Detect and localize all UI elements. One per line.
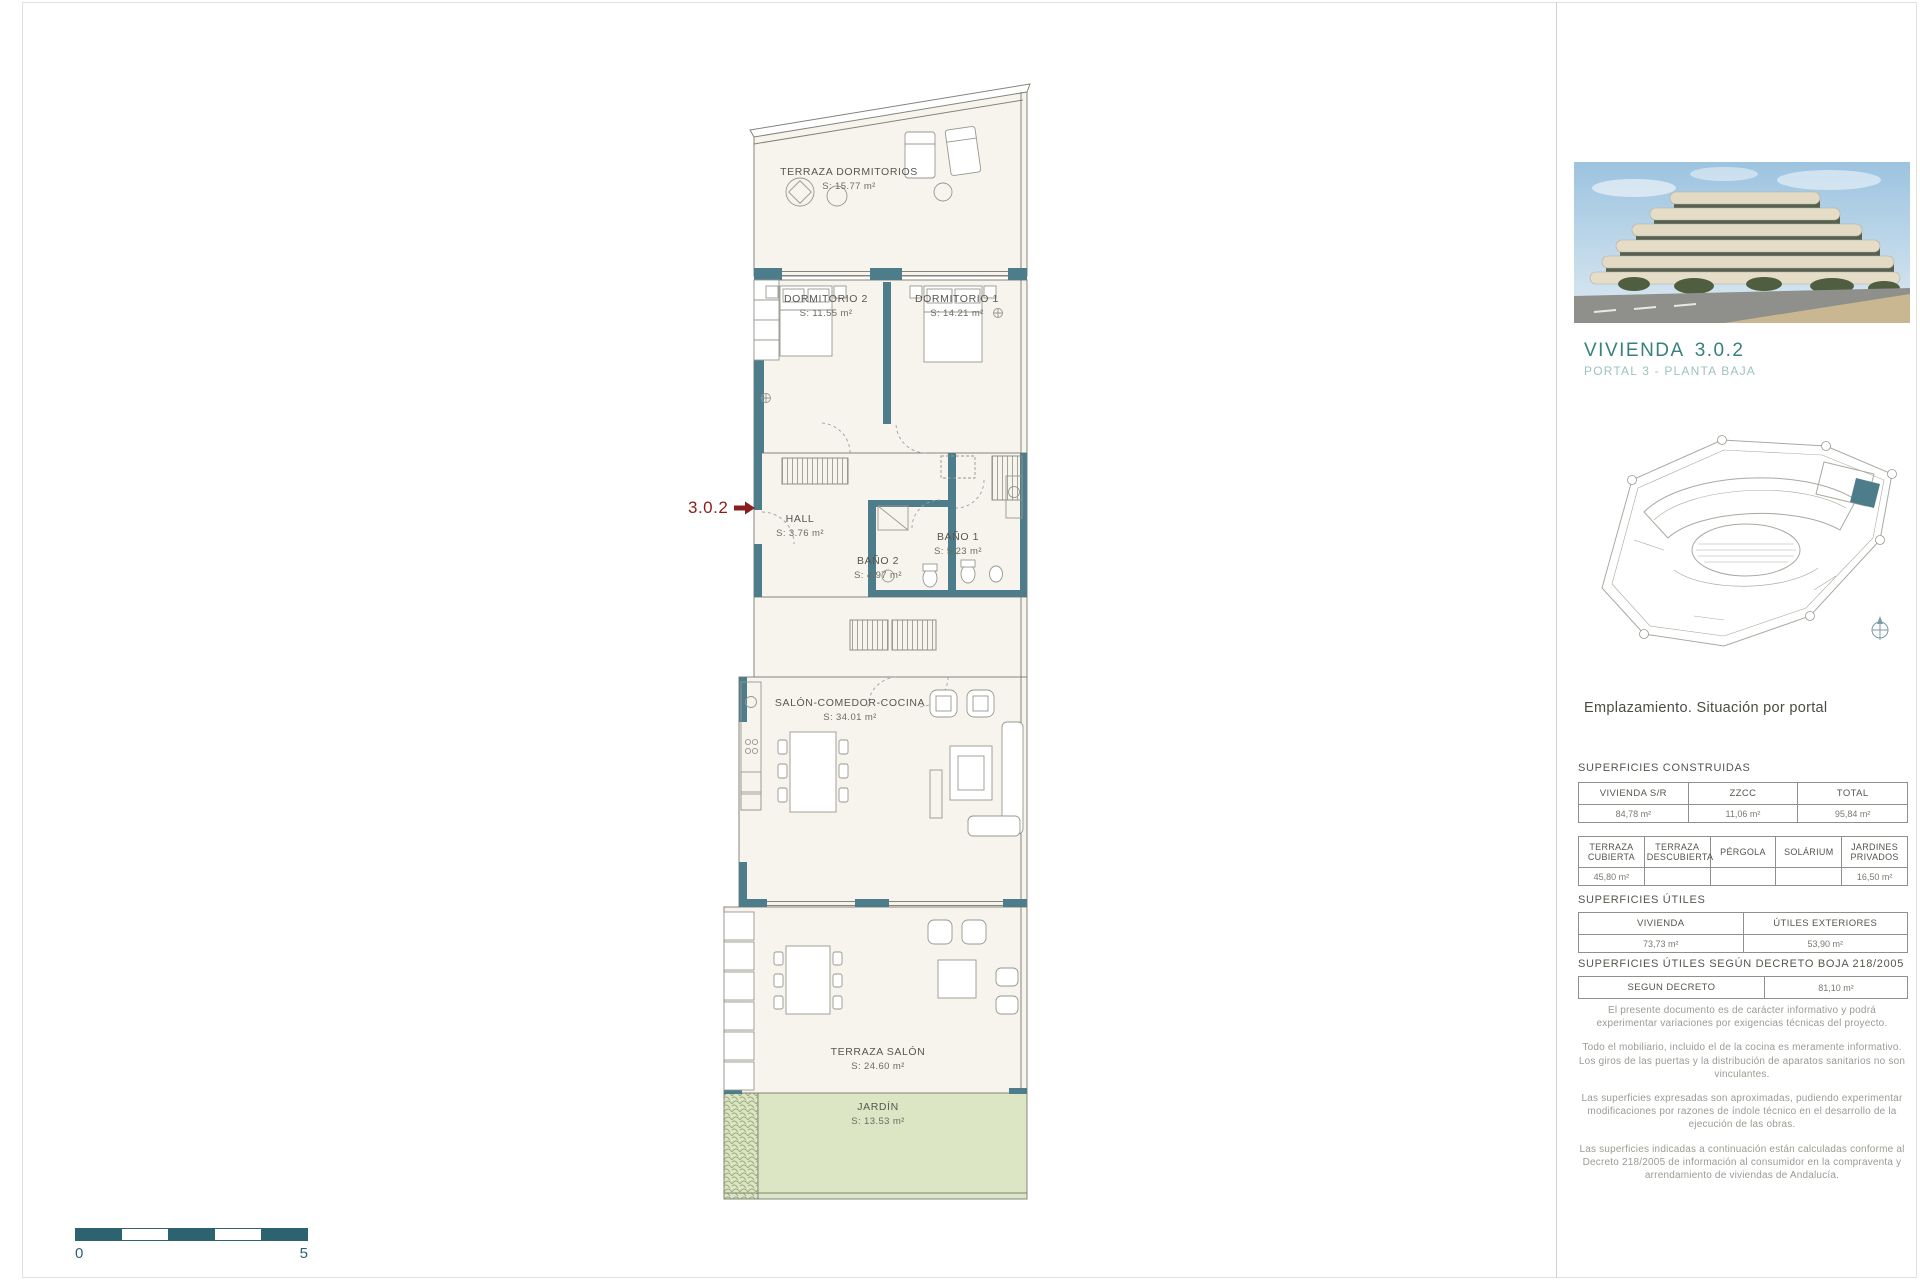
table-construidas: VIVIENDA S/R ZZCC TOTAL 84,78 m² 11,06 m…	[1578, 782, 1908, 823]
heading-decreto: SUPERFICIES ÚTILES SEGÚN DECRETO BOJA 21…	[1578, 958, 1904, 970]
disclaimer-paragraph: Las superficies indicadas a continuación…	[1578, 1143, 1906, 1183]
garden-area	[724, 1093, 1027, 1199]
disclaimer-block: El presente documento es de carácter inf…	[1574, 1004, 1910, 1193]
hall-wardrobe	[782, 458, 848, 484]
corridor-wardrobe-1	[850, 620, 888, 650]
sheet-frame-left	[22, 2, 23, 1278]
corridor-wardrobe-2	[892, 620, 936, 650]
table-cell: PÉRGOLA	[1710, 837, 1776, 868]
table-cell: 81,10 m²	[1764, 977, 1907, 999]
building-photo	[1574, 162, 1910, 323]
scale-start-label: 0	[75, 1245, 83, 1262]
plan-sheet: { "floor_plan": { "unit_marker": { "labe…	[0, 0, 1920, 1280]
scale-bar-segments	[75, 1228, 308, 1241]
garden-planting	[724, 1093, 758, 1199]
unit-number-label: 3.0.2	[688, 498, 728, 518]
table-cell: TOTAL	[1798, 783, 1908, 805]
table-cell: SOLÁRIUM	[1776, 837, 1842, 868]
table-terrazas: TERRAZA CUBIERTA TERRAZA DESCUBIERTA PÉR…	[1578, 836, 1908, 886]
table-cell: TERRAZA DESCUBIERTA	[1644, 837, 1710, 868]
scale-bar: 0 5	[75, 1228, 308, 1262]
unit-title: VIVIENDA3.0.2	[1584, 340, 1744, 362]
unit-title-number: 3.0.2	[1695, 340, 1745, 361]
disclaimer-paragraph: Todo el mobiliario, incluido el de la co…	[1578, 1041, 1906, 1081]
table-cell	[1644, 868, 1710, 886]
heading-superficies-utiles: SUPERFICIES ÚTILES	[1578, 894, 1706, 906]
info-sidebar: VIVIENDA3.0.2 PORTAL 3 - PLANTA BAJA	[1574, 0, 1910, 1280]
table-cell: 45,80 m²	[1579, 868, 1645, 886]
table-cell: TERRAZA CUBIERTA	[1579, 837, 1645, 868]
floor-plan-svg	[700, 80, 1040, 1230]
table-cell: VIVIENDA	[1579, 913, 1744, 935]
table-cell: JARDINES PRIVADOS	[1842, 837, 1908, 868]
site-caption: Emplazamiento. Situación por portal	[1584, 700, 1827, 716]
unit-subtitle: PORTAL 3 - PLANTA BAJA	[1584, 364, 1756, 378]
table-cell: ÚTILES EXTERIORES	[1743, 913, 1908, 935]
entry-arrow-icon	[734, 501, 756, 515]
disclaimer-paragraph: El presente documento es de carácter inf…	[1578, 1004, 1906, 1030]
table-cell: 84,78 m²	[1579, 805, 1689, 823]
table-cell: 11,06 m²	[1688, 805, 1798, 823]
table-cell	[1776, 868, 1842, 886]
table-cell: 53,90 m²	[1743, 935, 1908, 953]
table-cell: SEGUN DECRETO	[1579, 977, 1765, 999]
sidebar-separator	[1556, 2, 1557, 1278]
table-cell: ZZCC	[1688, 783, 1798, 805]
table-cell: 95,84 m²	[1798, 805, 1908, 823]
table-decreto: SEGUN DECRETO 81,10 m²	[1578, 976, 1908, 999]
table-utiles: VIVIENDA ÚTILES EXTERIORES 73,73 m² 53,9…	[1578, 912, 1908, 953]
scale-end-label: 5	[300, 1245, 308, 1262]
sheet-frame-right	[1916, 2, 1917, 1278]
table-cell: VIVIENDA S/R	[1579, 783, 1689, 805]
floor-plan	[700, 80, 1040, 1230]
closet-striped-right	[992, 456, 1022, 500]
site-plan	[1574, 420, 1910, 670]
table-cell: 73,73 m²	[1579, 935, 1744, 953]
heading-superficies-construidas: SUPERFICIES CONSTRUIDAS	[1578, 762, 1751, 774]
table-cell: 16,50 m²	[1842, 868, 1908, 886]
unit-entry-marker: 3.0.2	[688, 498, 756, 518]
unit-title-word: VIVIENDA	[1584, 340, 1685, 361]
table-cell	[1710, 868, 1776, 886]
compass-icon	[1872, 616, 1888, 640]
disclaimer-paragraph: Las superficies expresadas son aproximad…	[1578, 1092, 1906, 1132]
